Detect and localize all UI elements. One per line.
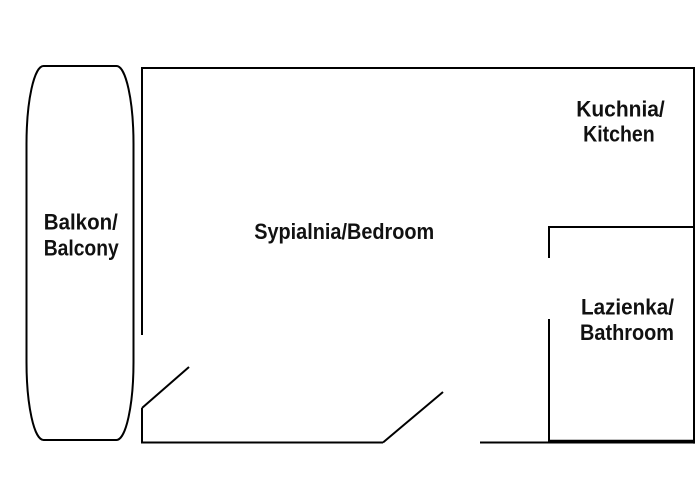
svg-text:Kuchnia/: Kuchnia/ [576,96,665,121]
svg-text:Kitchen: Kitchen [583,122,655,147]
svg-text:Lazienka/: Lazienka/ [581,294,675,319]
svg-text:Sypialnia/Bedroom: Sypialnia/Bedroom [254,219,434,244]
svg-text:Balkon/: Balkon/ [44,210,119,235]
svg-text:Balcony: Balcony [44,235,119,260]
svg-text:Bathroom: Bathroom [580,320,674,345]
